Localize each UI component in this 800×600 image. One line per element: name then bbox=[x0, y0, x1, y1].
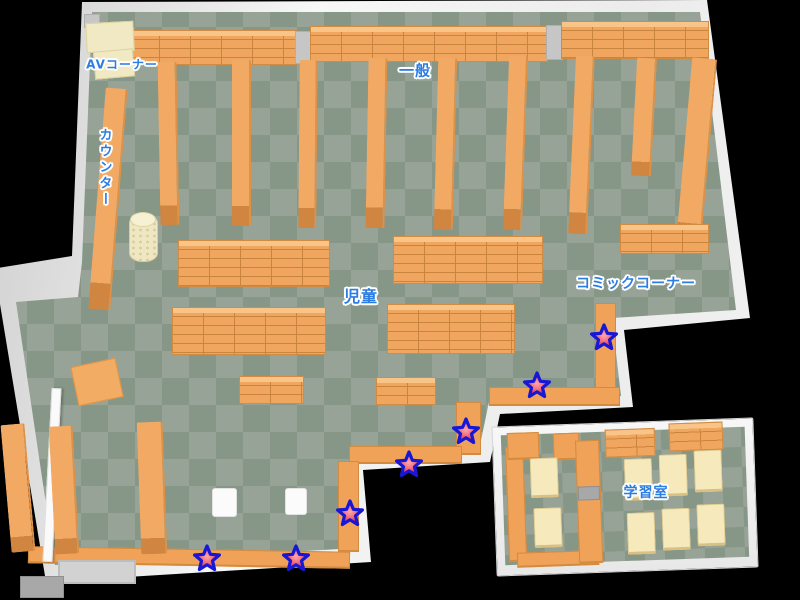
star-marker[interactable] bbox=[449, 414, 483, 448]
study-desk bbox=[530, 457, 559, 498]
star-marker[interactable] bbox=[587, 320, 621, 354]
star-marker[interactable] bbox=[279, 541, 313, 575]
study-desk bbox=[693, 450, 722, 493]
study-desk bbox=[627, 512, 656, 555]
study-desk bbox=[661, 508, 690, 551]
study-desk bbox=[696, 504, 725, 547]
library-floor-map: AVコーナーカウンター一般児童コミックコーナー学習室 bbox=[0, 0, 800, 600]
star-marker[interactable] bbox=[392, 447, 426, 481]
study-partition-notch bbox=[578, 486, 600, 501]
study-partition bbox=[575, 440, 603, 564]
study-shelf bbox=[668, 422, 723, 452]
study-desk bbox=[533, 507, 562, 548]
star-marker[interactable] bbox=[520, 368, 554, 402]
study-shelf bbox=[605, 428, 656, 458]
star-marker[interactable] bbox=[333, 496, 367, 530]
study-room bbox=[491, 417, 758, 576]
study-desk bbox=[624, 458, 653, 501]
study-desk bbox=[659, 454, 688, 497]
star-marker[interactable] bbox=[190, 541, 224, 575]
study-shelf bbox=[507, 432, 540, 460]
